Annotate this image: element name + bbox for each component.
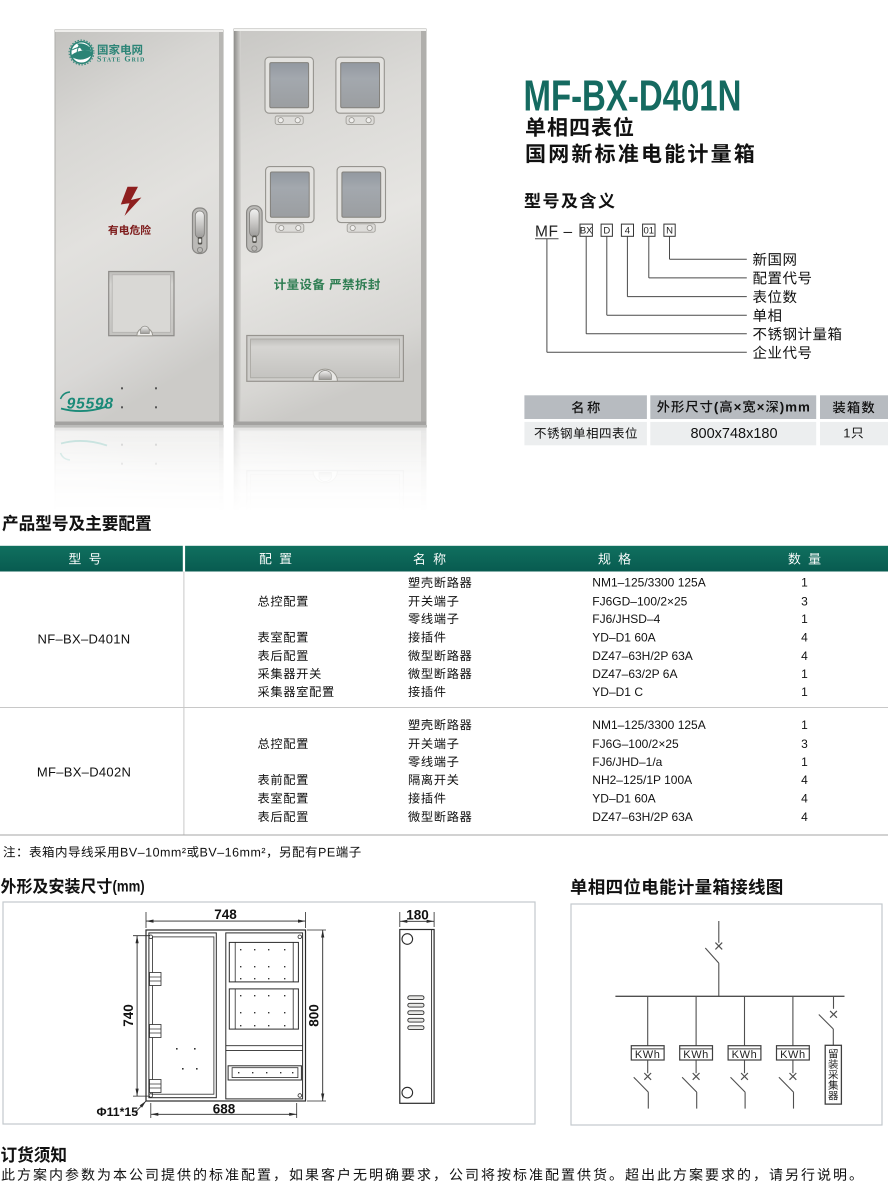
svg-text:KWh: KWh (683, 1049, 709, 1061)
svg-text:YD–D1 C: YD–D1 C (592, 685, 643, 699)
svg-text:N: N (666, 226, 673, 237)
svg-text:688: 688 (213, 1102, 236, 1117)
svg-text:1: 1 (801, 667, 808, 681)
svg-text:YD–D1 60A: YD–D1 60A (592, 791, 655, 805)
svg-text:1: 1 (801, 576, 808, 590)
svg-text:KWh: KWh (780, 1049, 806, 1061)
svg-text:KWh: KWh (635, 1049, 661, 1061)
svg-text:1: 1 (801, 612, 808, 626)
svg-text:BX: BX (580, 226, 593, 237)
svg-text:FJ6GD–100/2×25: FJ6GD–100/2×25 (592, 594, 687, 608)
svg-text:4: 4 (801, 791, 808, 805)
svg-text:740: 740 (121, 1004, 136, 1027)
svg-text:MF–BX–D402N: MF–BX–D402N (37, 764, 131, 779)
svg-text:4: 4 (801, 773, 808, 787)
svg-text:FJ6/JHD–1/a: FJ6/JHD–1/a (592, 755, 662, 769)
svg-text:01: 01 (644, 226, 655, 237)
svg-text:MF-BX-D401N: MF-BX-D401N (524, 72, 742, 120)
svg-text:748: 748 (214, 907, 237, 922)
svg-text:3: 3 (801, 737, 808, 751)
svg-text:DZ47–63H/2P 63A: DZ47–63H/2P 63A (592, 810, 693, 824)
svg-text:YD–D1 60A: YD–D1 60A (592, 630, 655, 644)
svg-text:4: 4 (801, 630, 808, 644)
svg-text:3: 3 (801, 594, 808, 608)
svg-text:KWh: KWh (732, 1049, 758, 1061)
svg-text:NM1–125/3300 125A: NM1–125/3300 125A (592, 718, 705, 732)
svg-text:4: 4 (801, 649, 808, 663)
svg-text:(mm): (mm) (113, 879, 145, 896)
svg-text:MF –: MF – (535, 223, 573, 240)
svg-text:NH2–125/1P 100A: NH2–125/1P 100A (592, 773, 692, 787)
svg-text:800x748x180: 800x748x180 (690, 426, 777, 442)
svg-text:4: 4 (625, 226, 630, 237)
svg-text:FJ6/JHSD–4: FJ6/JHSD–4 (592, 612, 660, 626)
svg-text:95598: 95598 (65, 396, 115, 413)
svg-text:1: 1 (801, 755, 808, 769)
svg-text:1: 1 (801, 685, 808, 699)
svg-text:800: 800 (307, 1004, 322, 1027)
svg-text:DZ47–63/2P 6A: DZ47–63/2P 6A (592, 667, 677, 681)
svg-text:4: 4 (801, 810, 808, 824)
svg-text:DZ47–63H/2P 63A: DZ47–63H/2P 63A (592, 649, 693, 663)
svg-text:NM1–125/3300 125A: NM1–125/3300 125A (592, 576, 705, 590)
svg-text:1: 1 (801, 718, 808, 732)
svg-text:Φ11*15: Φ11*15 (97, 1105, 139, 1119)
svg-text:D: D (603, 226, 610, 237)
svg-text:FJ6G–100/2×25: FJ6G–100/2×25 (592, 737, 679, 751)
svg-text:180: 180 (406, 908, 429, 923)
svg-text:NF–BX–D401N: NF–BX–D401N (38, 631, 131, 646)
